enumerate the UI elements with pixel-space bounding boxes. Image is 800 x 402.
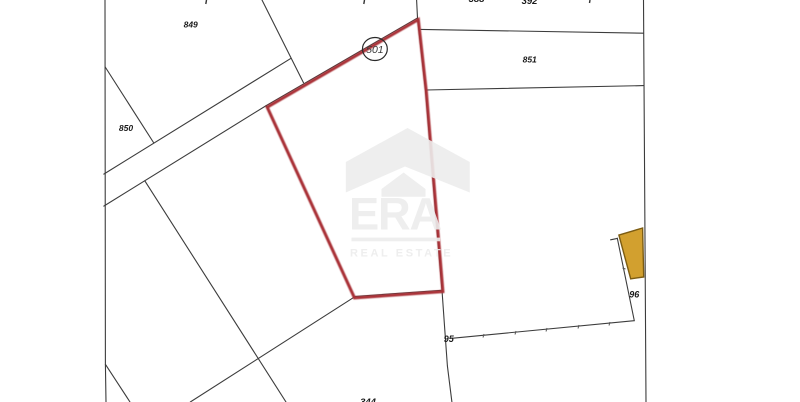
svg-text:REAL ESTATE: REAL ESTATE [350, 247, 453, 259]
svg-text:392: 392 [522, 0, 539, 7]
svg-text:96: 96 [629, 290, 640, 300]
svg-text:344: 344 [360, 397, 377, 402]
svg-text:95: 95 [444, 334, 455, 344]
svg-text:850: 850 [119, 123, 133, 133]
svg-text:ERA: ERA [349, 189, 442, 240]
svg-text:849: 849 [184, 20, 198, 30]
svg-text:851: 851 [523, 54, 537, 64]
svg-text:501: 501 [366, 44, 384, 56]
svg-text:388: 388 [469, 0, 486, 5]
